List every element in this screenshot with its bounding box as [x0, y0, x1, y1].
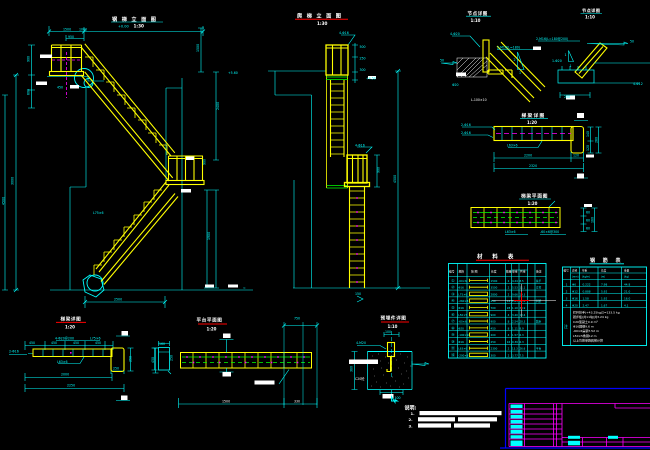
note-label: 注 — [564, 324, 568, 329]
table-cell: L63×6 — [458, 347, 467, 351]
dim-text: 100 — [395, 396, 401, 400]
dim-text: 450 — [73, 341, 79, 345]
dim-text: 4-Φ16 — [339, 31, 349, 35]
dim-text: 380 — [350, 366, 354, 372]
view-scale: 1:20 — [528, 201, 538, 206]
dim-text: 1060 — [79, 28, 87, 32]
dim-text: 450 — [151, 357, 155, 363]
beam-plan: 梯梁平面图 1:20 — [471, 193, 598, 235]
dim-text: 450 — [51, 341, 57, 345]
table-sketch — [470, 347, 488, 350]
table-title: 材 料 表 — [477, 253, 517, 261]
table-cell: Φ20 — [572, 304, 578, 308]
dim-text: L63×6 — [505, 230, 516, 234]
view-scale: 1:20 — [207, 327, 217, 332]
table-cell: ④ — [451, 298, 455, 303]
dim-text: 4-Φ20 — [450, 32, 460, 36]
table-sketch — [470, 286, 488, 289]
table-cell: 450 — [491, 326, 496, 330]
table-cell: Φ6 — [572, 283, 576, 287]
table-sketch — [470, 313, 488, 316]
section-mark — [223, 372, 232, 377]
table-headers: 编号规格简 图长度数量单重共重备注 — [449, 270, 542, 274]
table-header: (mm) — [572, 276, 579, 279]
ladder-top-cage — [326, 45, 348, 188]
table-cell: ① — [451, 278, 455, 283]
table-header: (kg/m) — [582, 276, 590, 279]
table-sketch — [470, 353, 488, 356]
table-cell: 5.53 — [512, 286, 518, 290]
table-cell: 1.63 — [512, 299, 518, 303]
wall-lines — [47, 77, 253, 291]
dimension-texts: 15001060950450L75×62500≈+5.6030009006004… — [2, 28, 643, 404]
dim-text: 900 — [27, 56, 31, 62]
dimension-lines — [2, 26, 219, 308]
dim-text: 2-M16(L=180) — [497, 46, 520, 50]
table-cell: 2 — [508, 347, 510, 351]
table-cell: 1.11 — [512, 326, 518, 330]
dimension-lines — [9, 336, 171, 401]
table-header: 重量 — [624, 269, 630, 273]
table-cell: 立柱 — [536, 286, 542, 290]
table-cell: ② — [451, 285, 455, 290]
dim-text: 150 — [355, 292, 361, 296]
table-cell: Φ16 — [458, 306, 464, 310]
dim-text: 1500 — [196, 44, 200, 52]
dim-text: 100 — [385, 330, 391, 334]
table-cell: 2800 — [491, 292, 498, 296]
dim-text: 1 — [519, 71, 521, 75]
dim-text: 2000 — [61, 373, 69, 377]
table-cell: 4 — [566, 304, 568, 308]
table-cell: 1.58 — [583, 297, 589, 301]
dim-text: Φ20 — [452, 83, 459, 87]
dimension-lines — [153, 322, 320, 408]
table-cell: ⑧ — [451, 325, 455, 330]
detail-a: 节点详图 1:10 — [441, 10, 545, 102]
dim-text: 1500 — [222, 400, 230, 404]
table-cell: ⑦ — [451, 319, 455, 324]
table-cell: 踏步 — [536, 320, 542, 324]
beam-stiffeners — [43, 349, 103, 357]
table-header: 直径 — [572, 269, 578, 273]
dim-text: 2500 — [114, 298, 122, 302]
note-number: 2. — [409, 417, 414, 422]
table-header: (kg) — [624, 276, 629, 279]
table-header: 共重 — [520, 270, 526, 274]
material-table: 材 料 表 编号规格简 图长度数量单重共重备注 ①-60×6150024.248… — [449, 253, 547, 358]
dim-text: 2-Φ16 — [461, 131, 471, 135]
table-cell: 21.0 — [624, 290, 630, 294]
note-text-smudge — [418, 417, 455, 421]
table-cell: 6.3 — [520, 333, 524, 337]
table-cell: 0.888 — [583, 290, 591, 294]
anchor-bolt — [387, 343, 395, 372]
table-note-line: 栏杆扶手(+43.25kg)Σ=133.5 kg — [573, 310, 620, 315]
table-cell: 8.9 — [520, 326, 524, 330]
table-cell: 3500 — [491, 286, 498, 290]
dim-text: 3000 — [11, 177, 15, 185]
dim-text: 60 — [586, 211, 590, 215]
table-cell: 4.24 — [512, 279, 518, 283]
table-cell: ⑨ — [451, 332, 455, 337]
table-header: 规格 — [459, 270, 465, 274]
table-cell: 1.92 — [601, 297, 607, 301]
view-scale: 1:20 — [65, 325, 75, 330]
cad-drawing: 钢梯立面图 +0.00 1:30 — [0, 0, 650, 450]
table-header: 编号 — [564, 269, 570, 273]
view-scale: 1:10 — [471, 18, 481, 23]
table-cell: 2.47 — [583, 304, 589, 308]
table-headers: 编号直径单重长度重量(mm)(kg/m)(m)(kg) — [564, 269, 630, 279]
dim-text: 2320 — [529, 164, 537, 168]
view-ladder-elevation: 爬梯立面图 1:30 — [268, 12, 430, 302]
table-cell: ⑫ — [451, 352, 455, 357]
table-cell: 1.10 — [512, 306, 518, 310]
section-mark — [122, 331, 129, 336]
dim-text: 4-Φ12 — [633, 82, 643, 86]
section-mark — [121, 396, 128, 401]
table-cell: 28 — [507, 306, 511, 310]
dim-text: 250 — [564, 95, 570, 99]
table-sketch — [470, 279, 488, 282]
table-notes: 栏杆扶手(+43.25kg)Σ=133.5 kg踏步板(共11块)共3.24 k… — [573, 310, 620, 343]
table-cell: L75×6 — [458, 292, 467, 296]
note-text-smudge — [420, 411, 502, 415]
dim-text: 1-Φ20 — [552, 59, 562, 63]
table-cell: 1.57 — [512, 333, 518, 337]
note-text-smudge — [458, 417, 497, 421]
table-cell: 13.3 — [512, 347, 518, 351]
view-scale: 1:10 — [585, 15, 595, 20]
level-mark: +0.00 — [118, 25, 129, 29]
dim-text: 1500 — [63, 28, 71, 32]
dim-text: 4500 — [2, 197, 6, 205]
dim-text: 120 — [573, 154, 579, 158]
dim-text: 4500 — [393, 175, 397, 183]
dim-text: 4-Φ16 — [355, 144, 365, 148]
label-smudge — [584, 204, 592, 207]
table-note-line: C20混凝土0.9 m³ — [573, 319, 599, 324]
table-note-line: -60×6扁钢7.52 m — [573, 328, 599, 333]
view-title: 梯梁详图 — [61, 316, 82, 323]
table-cell: 1500 — [491, 279, 498, 283]
dim-text: 750 — [294, 317, 300, 321]
table-note-line: L50×5角钢12 m — [573, 333, 597, 338]
dim-text: 2 — [514, 58, 516, 62]
dim-text: 300 — [360, 68, 366, 72]
table-header: 数量 — [506, 270, 512, 274]
grating-lines — [182, 357, 310, 363]
dim-text: L63×6 — [57, 360, 68, 364]
ladder-lower-run — [350, 186, 365, 288]
dim-text: 900 — [377, 167, 381, 173]
dim-text: ≈ — [243, 286, 246, 290]
dim-text: 260 — [595, 137, 599, 143]
dim-text: 450 — [29, 341, 35, 345]
table-cell: 13.6 — [520, 313, 526, 317]
table-cell: 斜梁 — [536, 299, 542, 303]
table-cell: 8 — [508, 320, 510, 324]
table-cell: 1 — [566, 283, 568, 287]
table-cell: 0.39 — [512, 340, 518, 344]
view-stair-elevation: 钢梯立面图 +0.00 1:30 — [2, 15, 253, 308]
table-cell: 2 — [508, 292, 510, 296]
table-cell: 30.9 — [520, 306, 526, 310]
table-cell: 3.40 — [512, 313, 518, 317]
table-cell: ⑤ — [451, 305, 455, 310]
dim-text: 950 — [68, 35, 74, 39]
dim-text: 250 — [360, 57, 366, 61]
table-cell: 8 — [508, 326, 510, 330]
table-sketch — [470, 326, 488, 329]
view-title: 预埋件详图 — [381, 315, 407, 322]
table-cell: 14 — [507, 299, 511, 303]
dim-text: 50 — [630, 40, 634, 44]
dim-text: 250 — [113, 367, 119, 371]
label-smudge — [349, 360, 378, 365]
table-cell: 900 — [491, 313, 496, 317]
table-cell: 44.8 — [624, 283, 630, 287]
view-scale: 1:10 — [388, 324, 398, 329]
table-cell: ⑥ — [451, 312, 455, 317]
dim-text: 2200 — [524, 154, 532, 158]
dim-text: 4-Φ20@200 — [55, 337, 74, 341]
table-cell: -60×6 — [458, 320, 467, 324]
mid-platform — [166, 156, 204, 185]
view-scale: 1:20 — [527, 120, 537, 125]
gusset-plate — [575, 43, 607, 78]
axis-dots — [186, 357, 305, 363]
table-cell: L50×5 — [458, 313, 467, 317]
table-cell: 5.92 — [601, 290, 607, 294]
table-sketch — [470, 306, 488, 309]
dim-text: 450 — [57, 86, 63, 90]
dim-text: 160 — [159, 342, 165, 346]
table-cell: 2 — [566, 290, 568, 294]
table-note-line: Φ16圆钢9.6 m — [573, 323, 594, 328]
title-block-text-smudges — [511, 405, 619, 447]
bl-platform-plan: 平台平面图 1:20 — [153, 317, 320, 409]
table-cell: 4 — [508, 333, 510, 337]
table-cell: 2 — [508, 353, 510, 357]
cad-viewport[interactable]: 钢梯立面图 +0.00 1:30 — [0, 0, 650, 450]
table-header: 单重 — [582, 269, 588, 273]
table-cell: 3 — [566, 297, 568, 301]
table-cell: Φ20 — [458, 326, 464, 330]
dim-text: 1900 — [207, 232, 211, 240]
table-cell: 11.1 — [520, 286, 526, 290]
table-cell: 22.8 — [520, 299, 526, 303]
table-header: 长度 — [601, 269, 607, 273]
label-smudge — [533, 47, 541, 51]
dim-text: 500 — [360, 45, 366, 49]
view-title: 平台平面图 — [197, 317, 223, 324]
section-mark — [577, 174, 584, 179]
table-cell: ⑪ — [451, 346, 455, 351]
dim-text: 2-Φ16 — [9, 350, 19, 354]
view-title: 节点详图 — [582, 7, 600, 14]
table-cell: 2.54 — [512, 320, 518, 324]
table-cell: 16 — [507, 340, 511, 344]
ladder-upper-run — [331, 80, 345, 157]
dim-text: 330 — [294, 400, 300, 404]
table-rows: ①-60×6150024.248.5扶手②Φ16350025.5311.1立柱③… — [449, 278, 547, 358]
view-title: 节点详图 — [468, 10, 488, 17]
plan-outline — [181, 353, 312, 369]
label-smudge — [586, 155, 594, 158]
label-smudge — [255, 381, 275, 385]
dim-text: 120 — [586, 145, 590, 151]
table-cell: 250 — [491, 340, 496, 344]
dim-text: 1 — [570, 64, 572, 68]
table-cell: 700 — [491, 306, 496, 310]
foundation-detail: 预埋件详图 1:10 — [349, 315, 429, 399]
section-mark — [577, 113, 584, 118]
rebar-table: 钢 筋 表 编号直径单重长度重量(mm)(kg/m)(m)(kg) 1Φ60.2… — [563, 257, 647, 346]
dim-text: 450 — [95, 341, 101, 345]
notes-block: 说明: 1. 2. 3. — [392, 397, 502, 429]
table-cell: 16.0 — [624, 297, 630, 301]
note-number: 3. — [409, 423, 414, 428]
title-block-grid — [509, 404, 650, 447]
table-cell: 250 — [491, 299, 496, 303]
dim-text: C20砼 — [355, 376, 365, 381]
table-sketch — [470, 333, 488, 336]
dim-text: 900 — [203, 159, 207, 165]
dim-text: 4-M20 — [356, 341, 366, 345]
grating-lines — [473, 213, 558, 223]
table-note-line: 以上均按单跑爬梯计算 — [573, 337, 603, 342]
beam-body — [33, 348, 124, 372]
dim-text: 250 — [170, 355, 174, 361]
table-sketch — [470, 299, 488, 302]
table-header: 编号 — [449, 270, 455, 274]
table-sketch — [470, 319, 488, 322]
dim-text: -60×6@300 — [540, 230, 559, 234]
dim-text: L63×6 — [507, 144, 518, 148]
table-cell: ③ — [451, 291, 455, 296]
dim-text: L75×6 — [93, 211, 104, 215]
table-cell: 19.3 — [520, 292, 526, 296]
table-cell: 0.222 — [583, 283, 591, 287]
note-number: 1. — [411, 411, 416, 416]
view-scale: 1:30 — [134, 24, 145, 29]
section-mark — [223, 334, 231, 339]
table-cell: 2300 — [491, 347, 498, 351]
table-cell: 2 — [508, 279, 510, 283]
note-text-smudge — [454, 423, 490, 427]
detail-circles — [75, 69, 105, 298]
dim-text: 1 — [565, 53, 567, 57]
ladder-axis-dots — [356, 198, 358, 282]
dim-text: 50 — [440, 59, 444, 63]
table-title: 钢 筋 表 — [590, 257, 623, 264]
dim-text: 60 — [586, 219, 590, 223]
bl-beam-detail: 梯梁详图 1:20 — [9, 316, 171, 401]
table-cell: 平台 — [536, 347, 542, 351]
table-cell: -260×8 — [458, 299, 468, 303]
table-cell: 20.3 — [520, 320, 526, 324]
table-cell: 200 — [491, 333, 496, 337]
table-header: 长度 — [491, 270, 497, 274]
dim-text: L-100×10 — [471, 98, 487, 102]
dim-text: 2-Φ16 — [461, 123, 471, 127]
view-scale: 1:30 — [317, 21, 328, 26]
table-header: 单重 — [512, 270, 518, 274]
table-sketch — [470, 292, 488, 295]
view-title: 梯梁详图 — [522, 112, 546, 119]
table-cell: 7.5 — [520, 353, 524, 357]
table-cell: 7.98 — [601, 283, 607, 287]
table-cell: Φ12 — [572, 290, 578, 294]
stair-stringer-upper — [81, 44, 175, 181]
label-smudge — [456, 73, 466, 77]
ladder-mid-cage — [345, 155, 370, 187]
table-cell: -100×10 — [458, 333, 470, 337]
dim-text: 140 — [586, 131, 590, 137]
table-cell: 2 — [508, 286, 510, 290]
dim-text: 2250 — [67, 384, 75, 388]
note-text-smudge — [418, 423, 451, 427]
table-cell: 8.5 — [520, 279, 524, 283]
table-cell: 26.6 — [520, 347, 526, 351]
dim-text: 2400 — [216, 102, 220, 110]
dim-text: 60 — [586, 227, 590, 231]
table-cell: 6.3 — [520, 340, 524, 344]
table-cell: Φ16 — [572, 297, 578, 301]
dim-text: 250 — [129, 356, 133, 362]
table-note-line: 踏步板(共11块)共3.24 kg — [573, 314, 609, 319]
table-cell: ⑩ — [451, 339, 455, 344]
beam-body — [494, 127, 584, 154]
table-cell: 4 — [508, 313, 510, 317]
table-sketch — [470, 340, 488, 343]
table-cell: 1.67 — [601, 304, 607, 308]
title-block — [500, 389, 650, 449]
view-title: 爬梯立面图 — [296, 12, 345, 20]
table-cell: -200×8 — [458, 353, 468, 357]
table-cell: 9.66 — [512, 292, 518, 296]
table-cell: Φ16 — [458, 340, 464, 344]
table-cell: 900 — [491, 320, 496, 324]
table-header: 备注 — [536, 270, 542, 274]
dim-text: 180 — [591, 217, 595, 223]
dim-text: 600 — [27, 89, 31, 95]
stair-stringer-lower — [94, 182, 178, 285]
table-cell: Φ16 — [458, 286, 464, 290]
beam-elevation: 梯梁详图 1:20 — [462, 112, 602, 179]
table-header: 简 图 — [471, 270, 478, 274]
table-cell: -60×6 — [458, 279, 467, 283]
table-cell: 3.77 — [512, 353, 518, 357]
dim-text: +4.50 — [366, 77, 376, 81]
dim-text: +5.60 — [228, 71, 238, 75]
table-cell: 扶手 — [536, 279, 542, 283]
grating-lines — [326, 77, 348, 188]
table-header: (m) — [601, 276, 605, 279]
view-title: 梯梁平面图 — [521, 193, 548, 200]
table-cell: 300 — [491, 353, 496, 357]
table-cell: 4.1 — [624, 304, 629, 308]
dim-text: 2-M16(L=180@200) — [536, 37, 568, 41]
